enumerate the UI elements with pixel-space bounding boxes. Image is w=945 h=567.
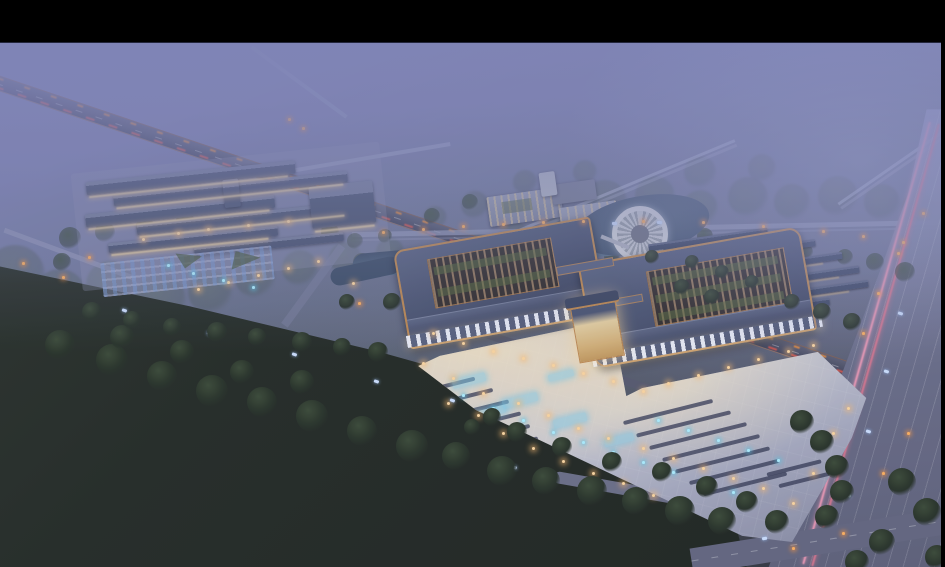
tree <box>790 410 814 434</box>
tree <box>230 360 254 384</box>
tree <box>532 467 560 495</box>
tree <box>913 498 941 526</box>
aerial-rendering-scene <box>0 0 945 567</box>
tree <box>665 496 695 526</box>
tree <box>170 340 194 364</box>
tree <box>708 507 736 535</box>
tree <box>347 416 377 446</box>
tree <box>292 332 312 352</box>
tree <box>464 419 480 435</box>
tree <box>696 476 718 498</box>
tree <box>82 302 102 322</box>
tree <box>296 400 328 432</box>
tree <box>784 294 800 310</box>
tree <box>552 437 572 457</box>
tree <box>685 255 699 269</box>
tree <box>383 293 401 311</box>
tree <box>888 468 916 496</box>
tree <box>207 322 227 342</box>
letterbox-top-bar <box>0 0 945 43</box>
tree <box>869 529 895 555</box>
tree <box>147 361 177 391</box>
tree <box>487 456 517 486</box>
tree <box>396 430 428 462</box>
tree <box>845 550 869 567</box>
tree <box>765 510 789 534</box>
tree <box>339 294 355 310</box>
tree <box>45 330 75 360</box>
tree <box>815 505 839 529</box>
tree <box>507 422 527 442</box>
tree <box>247 387 277 417</box>
tree <box>652 462 672 482</box>
tree <box>813 303 831 321</box>
tree <box>830 480 854 504</box>
tree <box>248 328 266 346</box>
tree <box>704 289 720 305</box>
tree <box>825 455 849 479</box>
tree <box>442 442 470 470</box>
tree <box>843 313 861 331</box>
tree <box>577 476 607 506</box>
tree <box>483 408 501 426</box>
tree <box>745 275 759 289</box>
tree <box>290 370 314 394</box>
tree <box>123 311 141 329</box>
tree <box>715 265 729 279</box>
letterbox-right-strip <box>941 0 945 567</box>
tree <box>196 375 228 407</box>
tree <box>736 491 758 513</box>
tree <box>645 250 659 264</box>
tree <box>602 452 622 472</box>
tree <box>368 342 388 362</box>
tree <box>622 487 650 515</box>
tree <box>333 338 351 356</box>
tree <box>674 279 690 295</box>
tree <box>810 430 834 454</box>
tree <box>163 318 181 336</box>
foreground-tree-layer <box>0 0 945 567</box>
